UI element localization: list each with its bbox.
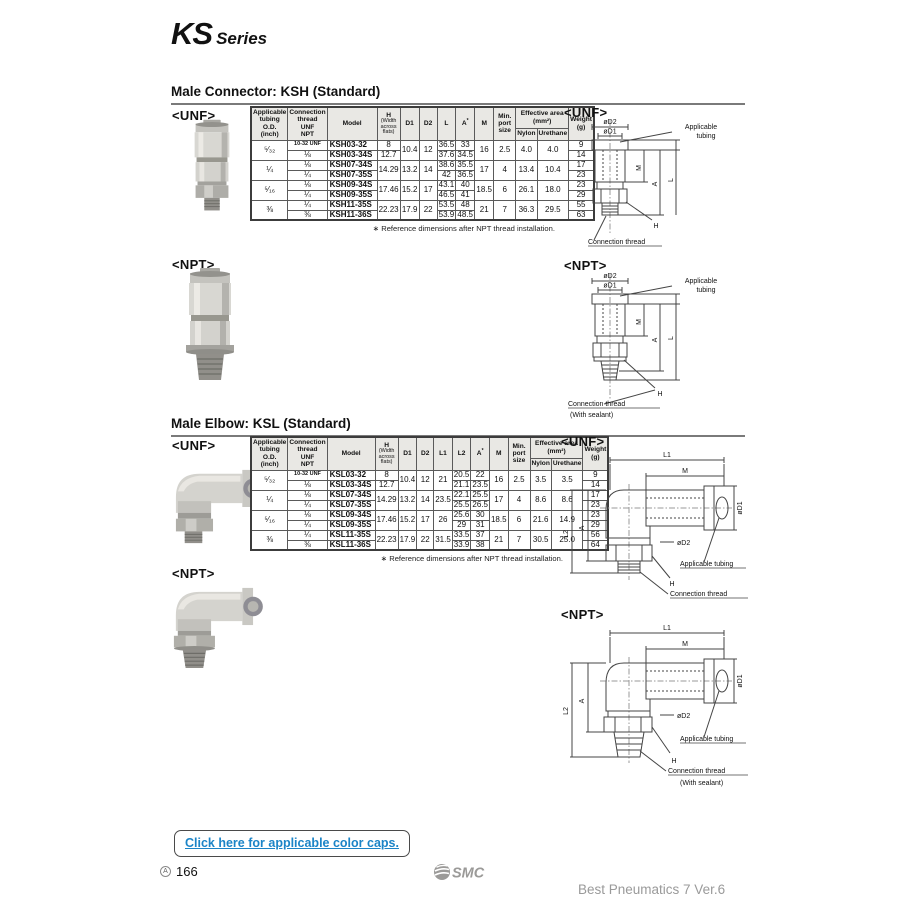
col-header: ApplicabletubingO.D.(inch) [251,107,288,140]
cell-nylon: 4.0 [516,140,537,160]
cell-d1: 13.2 [398,490,417,510]
dim-a: A [579,698,586,703]
col-header: H(Widthacrossflats) [377,107,400,140]
cell-model: KSH09-35S [327,190,377,200]
cell-model: KSH07-34S [327,160,377,170]
cell-a: 48.5 [456,210,475,220]
cell-size: ¼ [251,490,288,510]
dim-l1: L1 [663,625,671,632]
cell-model: KSH03-34S [327,150,377,160]
cell-thread: ⅛ [288,490,327,500]
cell-h: 17.46 [375,510,398,530]
dim-h: H [671,758,676,765]
cell-l: 36.5 [437,140,456,150]
cell-thread: ⅛ [288,510,327,520]
color-caps-link[interactable]: Click here for applicable color caps. [185,836,399,850]
cell-m: 17 [489,490,508,510]
cell-port: 6 [494,180,516,200]
thread-label: Connection thread [588,239,645,246]
col-header: Model [327,107,377,140]
ksl-npt-photo [163,584,263,670]
cell-l1: 26 [434,510,453,530]
cell-a: 48 [456,200,475,210]
col-header: D1 [400,107,419,140]
cell-a: 38 [471,540,490,550]
col-header: A* [456,107,475,140]
cell-nylon: 8.6 [530,490,551,510]
sealant-label: (With sealant) [680,780,723,787]
cell-thread: ⅛ [288,480,327,490]
cell-port: 4 [508,490,530,510]
thread-label: Connection thread [668,768,725,775]
cell-d2: 17 [419,180,437,200]
tubing-label-2: tubing [696,287,715,294]
table-row: ⁵⁄₁₆⅛KSH09-34S17.4615.21743.14018.5626.1… [251,180,594,190]
cell-d2: 12 [419,140,437,160]
cell-h: 22.23 [375,530,398,550]
cell-h: 14.29 [375,490,398,510]
col-header: D2 [419,107,437,140]
cell-a: 30 [471,510,490,520]
cell-thread: ⅛ [288,180,327,190]
page-number-block: A 166 [160,864,198,879]
cell-model: KSL03-34S [327,480,375,490]
color-caps-link-box: Click here for applicable color caps. [174,830,410,857]
cell-model: KSH09-34S [327,180,377,190]
cell-thread: ⅜ [288,540,327,550]
col-header: L1 [434,437,453,470]
cell-l2: 22.1 [452,490,471,500]
col-header: H(Widthacrossflats) [375,437,398,470]
cell-d1: 15.2 [398,510,417,530]
cell-m: 17 [475,160,494,180]
tubing-label: Applicable tubing [680,561,733,568]
cell-port: 2.5 [508,470,530,490]
thread-label: Connection thread [670,591,727,598]
table-row: ⁵⁄₃₂10-32 UNFKSL03-32810.4122120.522162.… [251,470,608,480]
table-row: ¼⅛KSL07-34S14.2913.21423.522.125.51748.6… [251,490,608,500]
cell-nylon: 21.6 [530,510,551,530]
cell-l2: 21.1 [452,480,471,490]
cell-d1: 17.9 [398,530,417,550]
dim-h: H [669,581,674,588]
cell-l1: 21 [434,470,453,490]
ksh-spec-table: ApplicabletubingO.D.(inch)Connectionthre… [250,106,595,221]
cell-l: 53.9 [437,210,456,220]
series-name: KS [171,16,212,51]
cell-h: 17.46 [377,180,400,200]
dim-d1: øD1 [737,501,744,514]
cell-size: ⁵⁄₁₆ [251,180,288,200]
cell-d2: 22 [417,530,434,550]
cell-model: KSH07-35S [327,170,377,180]
cell-d1: 13.2 [400,160,419,180]
ksh-unf-diagram: øD2 øD1 Applicable tubing M A L H Connec… [560,116,742,250]
cell-a: 26.5 [471,500,490,510]
dim-m: M [636,165,643,171]
dim-d2: øD2 [677,540,690,547]
table-row: ⅜¼KSL11-35S22.2317.92231.533.53721730.52… [251,530,608,540]
cell-l1: 23.5 [434,490,453,510]
col-header: Min.portsize [494,107,516,140]
cell-model: KSH03-32 [327,140,377,150]
cell-port: 6 [508,510,530,530]
cell-h: 8 [375,470,398,480]
tubing-label: Applicable tubing [680,736,733,743]
cell-nylon: 36.3 [516,200,537,220]
cell-l: 38.6 [437,160,456,170]
col-header: M [489,437,508,470]
col-subheader: Nylon [516,128,537,140]
cell-d1: 10.4 [400,140,419,160]
col-header: ConnectionthreadUNFNPT [288,107,327,140]
ksl-section-heading: Male Elbow: KSL (Standard) [171,416,745,437]
cell-m: 16 [489,470,508,490]
cell-a: 22 [471,470,490,480]
cell-thread: 10-32 UNF [288,470,327,480]
cell-a: 23.5 [471,480,490,490]
series-title: KSSeries [171,16,267,52]
col-header: Model [327,437,375,470]
cell-d1: 15.2 [400,180,419,200]
cell-size: ⁵⁄₃₂ [251,140,288,160]
tubing-label-1: Applicable [685,124,717,131]
cell-h: 8 [377,140,400,150]
cell-h: 14.29 [377,160,400,180]
cell-l: 42 [437,170,456,180]
dim-d1: øD1 [603,129,616,136]
cell-l2: 33.5 [452,530,471,540]
cell-d2: 17 [417,510,434,530]
cell-port: 4 [494,160,516,180]
dim-m: M [682,641,688,648]
cell-l: 53.5 [437,200,456,210]
cell-d1: 17.9 [400,200,419,220]
cell-a: 31 [471,520,490,530]
cell-port: 7 [494,200,516,220]
dim-d1: øD1 [737,674,744,687]
cell-l2: 25.6 [452,510,471,520]
cell-m: 16 [475,140,494,160]
ksl-footnote: ∗ Reference dimensions after NPT thread … [250,554,563,563]
cell-d2: 14 [417,490,434,510]
col-subheader: Nylon [530,458,551,470]
cell-l: 43.1 [437,180,456,190]
catalog-page: { "page": { "series_title": "KS", "serie… [0,0,907,907]
cell-model: KSL11-36S [327,540,375,550]
cell-nylon: 26.1 [516,180,537,200]
page-marker-icon: A [160,866,171,877]
ksh-npt-photo [176,268,244,390]
cell-a: 34.5 [456,150,475,160]
cell-model: KSL09-34S [327,510,375,520]
cell-h: 22.23 [377,200,400,220]
col-header: D2 [417,437,434,470]
table-row: ⁵⁄₃₂10-32 UNFKSH03-32810.41236.533162.54… [251,140,594,150]
ksh-section-heading: Male Connector: KSH (Standard) [171,84,745,105]
cell-a: 25.5 [471,490,490,500]
cell-a: 37 [471,530,490,540]
cell-a: 33 [456,140,475,150]
col-header: ApplicabletubingO.D.(inch) [251,437,288,470]
ksh-footnote: ∗ Reference dimensions after NPT thread … [250,224,555,233]
dim-m: M [636,319,643,325]
ksl-unf-diagram: L1 M øD1 L2 A øD2 Applicable tubing H Co… [556,446,750,608]
ksl-unf-photo-label: <UNF> [172,438,215,453]
dim-l2: L2 [563,707,570,715]
cell-d2: 14 [419,160,437,180]
cell-thread: ¼ [288,200,327,210]
smc-logo-text: SMC [452,866,485,882]
table-row: ⅜¼KSH11-35S22.2317.92253.54821736.329.55… [251,200,594,210]
col-header: Min.portsize [508,437,530,470]
cell-m: 21 [475,200,494,220]
cell-nylon: 3.5 [530,470,551,490]
table-row: ¼⅛KSH07-34S14.2913.21438.635.517413.410.… [251,160,594,170]
cell-d1: 10.4 [398,470,417,490]
cell-l2: 25.5 [452,500,471,510]
dim-l2: L2 [563,530,570,538]
dim-a: A [652,337,659,342]
col-header: L2 [452,437,471,470]
cell-h: 12.7 [375,480,398,490]
cell-l1: 31.5 [434,530,453,550]
cell-a: 41 [456,190,475,200]
dim-d1: øD1 [603,283,616,290]
ksh-unf-photo [184,119,240,215]
cell-a: 36.5 [456,170,475,180]
dim-l1: L1 [663,452,671,459]
cell-thread: ⅜ [288,210,327,220]
cell-size: ¼ [251,160,288,180]
cell-thread: ⅛ [288,150,327,160]
cell-model: KSL07-35S [327,500,375,510]
dim-a: A [579,525,586,530]
ksl-unf-photo [166,466,262,548]
col-header: A* [471,437,490,470]
dim-h: H [657,391,662,398]
cell-h: 12.7 [377,150,400,160]
cell-l: 46.5 [437,190,456,200]
series-suffix: Series [216,29,267,48]
cell-thread: ¼ [288,500,327,510]
cell-model: KSH11-35S [327,200,377,210]
cell-thread: ⅛ [288,160,327,170]
cell-port: 2.5 [494,140,516,160]
cell-l2: 20.5 [452,470,471,480]
col-header: D1 [398,437,417,470]
cell-d2: 12 [417,470,434,490]
cell-size: ⁵⁄₁₆ [251,510,288,530]
dim-d2: øD2 [603,273,616,280]
cell-m: 21 [489,530,508,550]
ksl-npt-diagram: L1 M øD1 L2 A øD2 Applicable tubing H Co… [556,619,750,791]
thread-label: Connection thread [568,401,625,408]
cell-nylon: 30.5 [530,530,551,550]
cell-model: KSL07-34S [327,490,375,500]
cell-model: KSL09-35S [327,520,375,530]
dim-l: L [668,178,675,182]
cell-port: 7 [508,530,530,550]
col-header: L [437,107,456,140]
dim-d2: øD2 [677,713,690,720]
col-header: M [475,107,494,140]
cell-l2: 29 [452,520,471,530]
cell-thread: ¼ [288,530,327,540]
dim-h: H [653,223,658,230]
cell-size: ⅜ [251,530,288,550]
ksh-npt-diagram: øD2 øD1 Applicable tubing M A L H Connec… [560,270,742,422]
cell-a: 40 [456,180,475,190]
ksl-npt-photo-label: <NPT> [172,566,215,581]
cell-thread: 10-32 UNF [288,140,327,150]
cell-a: 35.5 [456,160,475,170]
cell-nylon: 13.4 [516,160,537,180]
cell-m: 18.5 [475,180,494,200]
footer-version-text: Best Pneumatics 7 Ver.6 [578,882,725,897]
cell-l: 37.6 [437,150,456,160]
table-row: ⁵⁄₁₆⅛KSL09-34S17.4615.2172625.63018.5621… [251,510,608,520]
page-number: 166 [176,864,198,879]
cell-model: KSH11-36S [327,210,377,220]
dim-a: A [652,181,659,186]
cell-size: ⁵⁄₃₂ [251,470,288,490]
dim-l: L [668,336,675,340]
dim-d2: øD2 [603,119,616,126]
tubing-label-1: Applicable [685,278,717,285]
smc-logo: SMC [433,862,489,882]
cell-l2: 33.9 [452,540,471,550]
cell-size: ⅜ [251,200,288,220]
cell-model: KSL03-32 [327,470,375,480]
cell-d2: 22 [419,200,437,220]
cell-model: KSL11-35S [327,530,375,540]
cell-thread: ¼ [288,190,327,200]
cell-thread: ¼ [288,170,327,180]
tubing-label-2: tubing [696,133,715,140]
dim-m: M [682,468,688,475]
cell-m: 18.5 [489,510,508,530]
col-header: ConnectionthreadUNFNPT [288,437,327,470]
cell-thread: ¼ [288,520,327,530]
